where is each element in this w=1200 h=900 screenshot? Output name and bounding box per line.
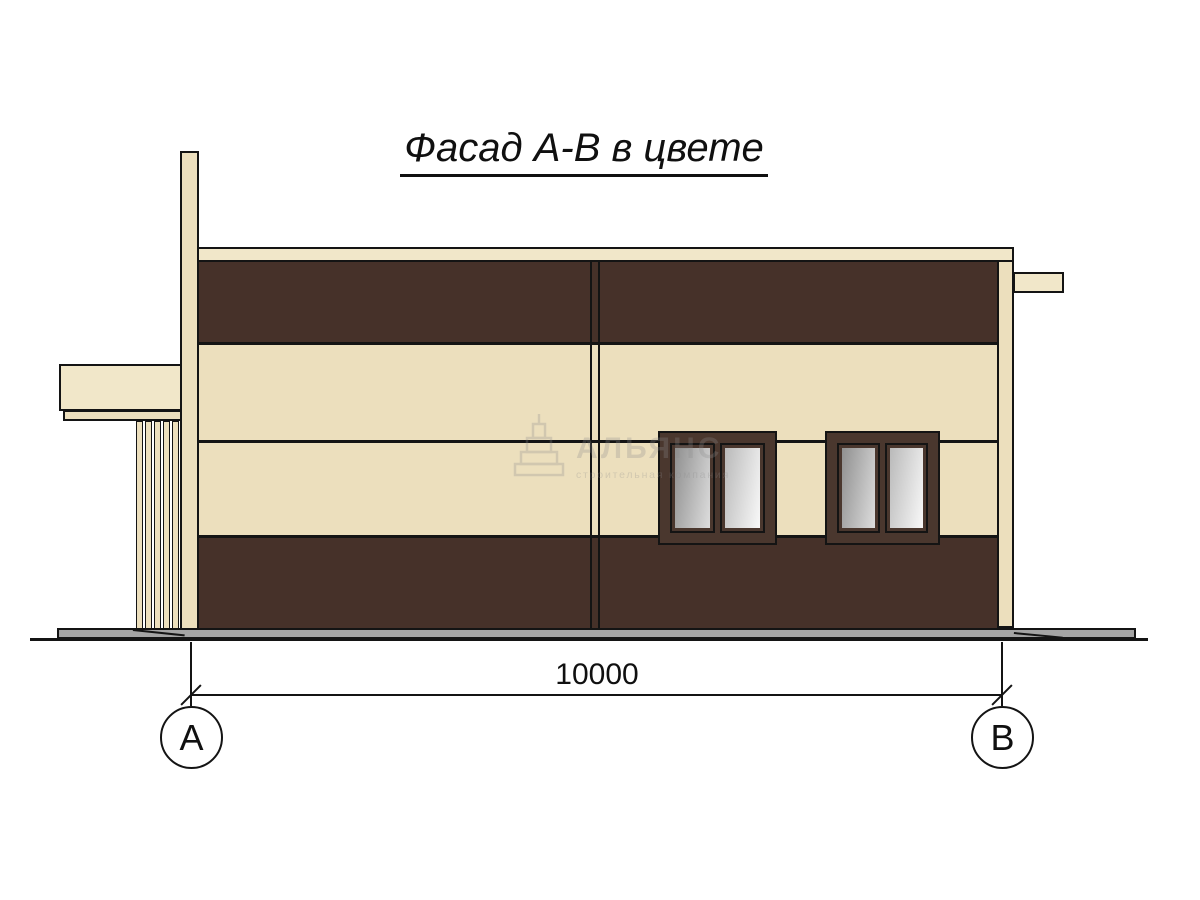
roof-fascia-board bbox=[180, 247, 1014, 262]
facade-band-cream-upper bbox=[197, 344, 997, 442]
dimension-line bbox=[191, 694, 1003, 696]
facade-band-brown-upper bbox=[197, 262, 997, 344]
porch-slat bbox=[154, 421, 161, 631]
window-right bbox=[825, 431, 940, 545]
axis-marker-b-label: В bbox=[990, 717, 1014, 759]
porch-canopy-trim bbox=[63, 410, 183, 421]
axis-marker-b: В bbox=[971, 706, 1034, 769]
window-pane-glass bbox=[720, 443, 765, 533]
porch-slat bbox=[136, 421, 143, 631]
facade-drawing: Фасад А-В в цвете 10000 А В bbox=[0, 0, 1200, 900]
porch-slat bbox=[172, 421, 179, 631]
window-pane-glass bbox=[885, 443, 928, 533]
chimney-post bbox=[180, 151, 199, 632]
drawing-title-text: Фасад А-В в цвете bbox=[400, 126, 768, 177]
window-pane-glass bbox=[670, 443, 715, 533]
corner-column-right bbox=[997, 260, 1014, 628]
window-pane-glass bbox=[837, 443, 880, 533]
facade-seam-line-1 bbox=[197, 342, 997, 345]
facade-band-brown-lower bbox=[197, 537, 997, 628]
dimension-value: 10000 bbox=[497, 658, 697, 692]
window-left bbox=[658, 431, 777, 545]
axis-marker-a: А bbox=[160, 706, 223, 769]
panel-joint-line-left bbox=[590, 262, 592, 628]
axis-marker-a-label: А bbox=[179, 717, 203, 759]
panel-joint-line-right bbox=[598, 262, 600, 628]
eave-beam-right bbox=[1013, 272, 1064, 293]
drawing-title: Фасад А-В в цвете bbox=[384, 126, 784, 177]
ground-line bbox=[30, 638, 1148, 641]
porch-slat bbox=[145, 421, 152, 631]
porch-slat bbox=[163, 421, 170, 631]
porch-canopy bbox=[59, 364, 183, 411]
